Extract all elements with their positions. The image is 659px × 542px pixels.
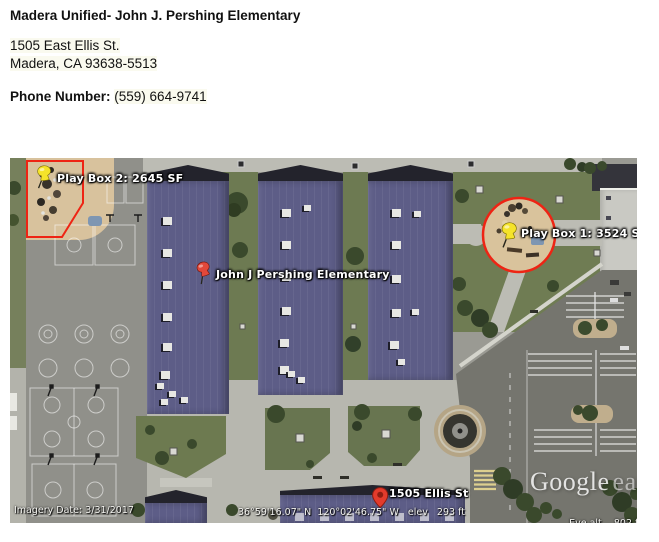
eye-altitude: Eye alt 802 ft [557, 507, 637, 523]
google-earth-logo-earth: earth [613, 467, 637, 496]
page-title: Madera Unified- John J. Pershing Element… [10, 8, 300, 23]
phone-label: Phone Number: [10, 89, 111, 104]
rooftop-units-right-building [606, 196, 631, 296]
street-label: 1505 Ellis St [389, 487, 468, 500]
pushpin-red-school [195, 260, 214, 284]
address-line-1: 1505 East Ellis St. [10, 38, 120, 53]
satellite-map: Play Box 2: 2645 SF Play Box 1: 3524 SF … [10, 158, 637, 523]
google-earth-logo-google: Google [530, 467, 610, 496]
phone-value: (559) 664-9741 [114, 89, 206, 104]
document-header: Madera Unified- John J. Pershing Element… [10, 8, 300, 118]
play-box-1-label: Play Box 1: 3524 SF [521, 227, 637, 240]
pushpin-yellow-play-box-1 [501, 222, 519, 247]
imagery-date: Imagery Date: 3/31/2017 [14, 505, 134, 516]
school-label: John J Pershing Elementary [216, 268, 390, 281]
marker-pin-street [373, 488, 388, 508]
coordinates-readout: 36°59'16.07" N 120°02'46.75" W elev 293 … [238, 507, 465, 518]
address-line-2: Madera, CA 93638-5513 [10, 56, 157, 71]
eye-altitude-value: 802 ft [614, 518, 637, 523]
pushpin-yellow-play-box-2 [36, 165, 52, 188]
google-earth-logo: Googleearth [530, 467, 637, 497]
eye-altitude-label: Eye alt [569, 518, 602, 523]
play-box-2-label: Play Box 2: 2645 SF [57, 172, 183, 185]
